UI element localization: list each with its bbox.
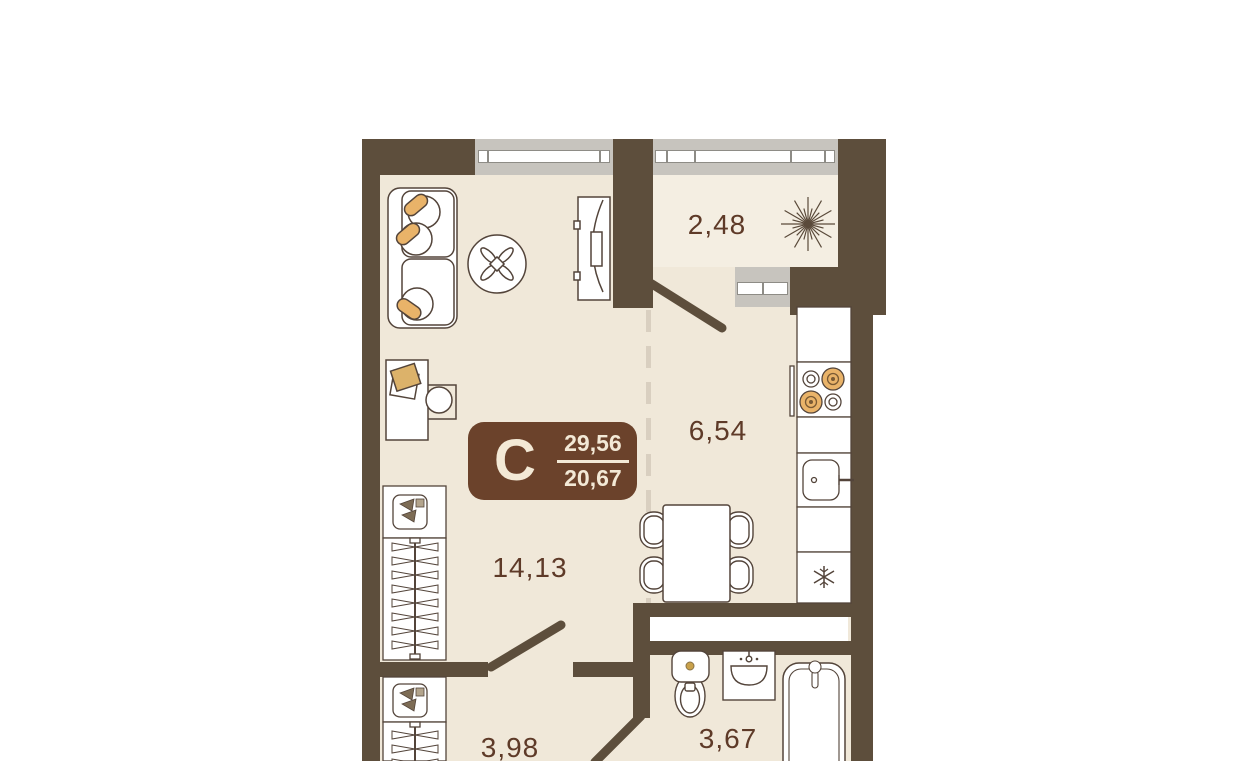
page-background: 2,48 6,54 14,13 3,98 3,67 C 29,56 20,67 <box>0 0 1250 761</box>
floor-plan: 2,48 6,54 14,13 3,98 3,67 C 29,56 20,67 <box>362 139 886 761</box>
living-room-area-label: 14,13 <box>492 552 567 584</box>
fraction-bar <box>557 460 629 463</box>
total-area-value: 29,56 <box>564 430 622 458</box>
hall-wardrobe-icon <box>383 677 446 761</box>
kitchen-counter <box>797 307 851 603</box>
tv-icon <box>574 197 610 300</box>
balcony-area-label: 2,48 <box>688 209 747 241</box>
balcony-door <box>652 284 722 328</box>
desk-icon <box>386 360 428 440</box>
plant-icon <box>781 197 835 251</box>
hallway-area-label: 3,98 <box>481 732 540 761</box>
bathroom-area-label: 3,67 <box>699 723 758 755</box>
bathtub-icon <box>783 661 845 761</box>
dining-table-icon <box>663 505 730 602</box>
kitchen-area-label: 6,54 <box>689 415 748 447</box>
room-door <box>491 625 561 667</box>
sofa-icon <box>388 188 457 328</box>
coffee-table-icon <box>468 235 526 293</box>
toilet-icon <box>672 651 709 717</box>
apartment-type-badge: C 29,56 20,67 <box>468 422 637 500</box>
wardrobe-icon <box>383 486 446 660</box>
living-area-value: 20,67 <box>564 465 622 493</box>
area-fraction: 29,56 20,67 <box>556 430 630 492</box>
apartment-type-letter: C <box>494 432 536 490</box>
bathroom-door <box>595 716 641 761</box>
desk-chair-icon <box>426 385 456 419</box>
washbasin-icon <box>723 651 775 700</box>
